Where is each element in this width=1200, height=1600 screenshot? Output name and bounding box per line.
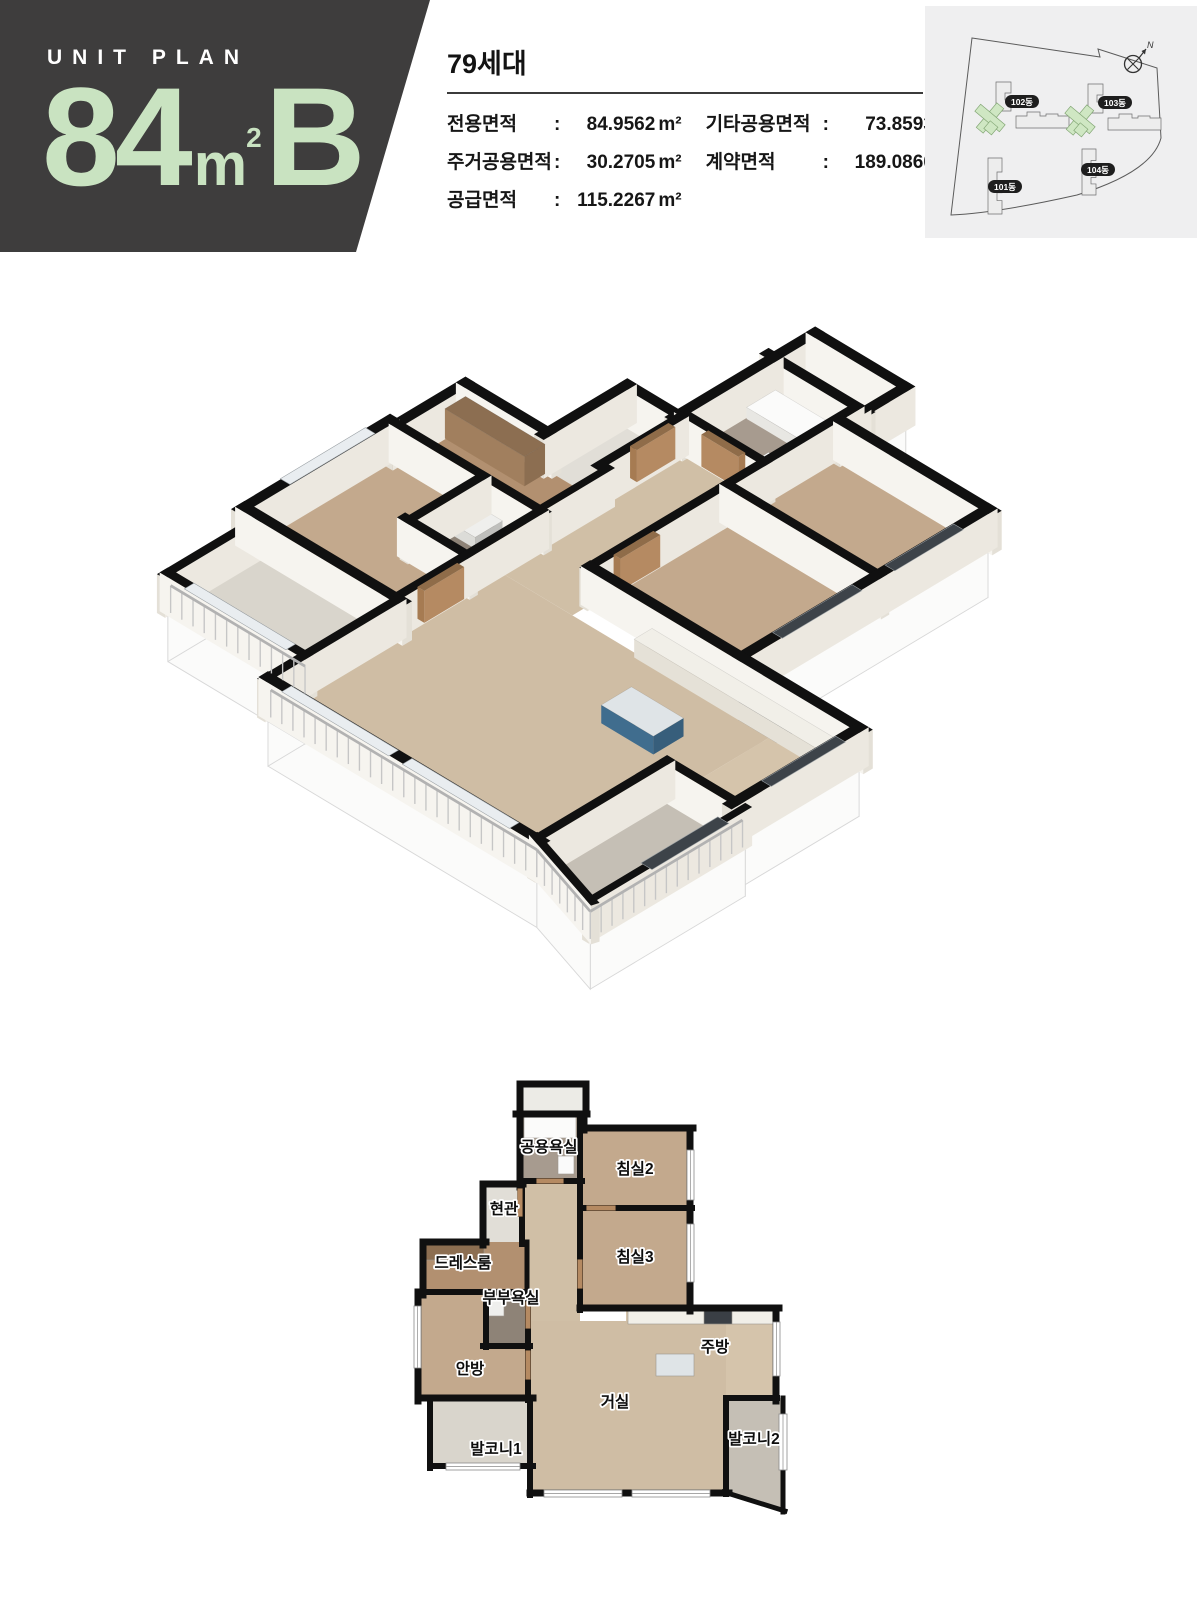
spec-unit: m² <box>658 114 681 136</box>
wall <box>517 1081 590 1088</box>
room-label: 공용욕실 <box>520 1138 577 1156</box>
spec-colon: : <box>823 152 829 174</box>
room-label: 드레스룸 <box>434 1254 491 1272</box>
fixture <box>558 1156 574 1174</box>
building-badge-label: 104동 <box>1087 165 1109 175</box>
spec-colon: : <box>823 114 829 136</box>
door-end <box>417 587 424 623</box>
room-label: 발코니2 <box>728 1430 779 1448</box>
building-badge: 104동 <box>1081 163 1115 176</box>
spec-label: 공급면적 <box>447 185 553 212</box>
room-label: 발코니1 <box>470 1440 522 1458</box>
spec-label: 주거공용면적 <box>447 147 553 174</box>
spec-value: 115.2267 <box>563 190 655 212</box>
building-badge-label: 101동 <box>994 182 1016 192</box>
door <box>578 1260 583 1289</box>
wall <box>723 1395 780 1401</box>
spec-colon: : <box>554 152 560 174</box>
compass-north-label: N <box>1147 40 1154 50</box>
room-label: 거실 <box>601 1393 630 1411</box>
unit-type-title: 84 m2 B <box>42 60 361 214</box>
building-badge: 103동 <box>1098 96 1132 109</box>
unit-area-number: 84 <box>42 60 188 214</box>
wall <box>581 1125 697 1132</box>
wall <box>577 1305 783 1312</box>
door <box>537 1179 564 1184</box>
spec-label: 계약면적 <box>706 147 822 174</box>
door <box>526 1351 531 1380</box>
spec-value: 189.0860 <box>832 152 934 174</box>
room-label: 현관 <box>490 1199 519 1218</box>
spec-colon: : <box>554 190 560 212</box>
divider-line <box>447 92 923 94</box>
building-badge-label: 102동 <box>1011 97 1033 107</box>
site-plan-map: N102동103동101동104동 <box>925 6 1197 238</box>
building-badge-label: 103동 <box>1104 98 1126 108</box>
households-count: 79세대 <box>447 42 923 81</box>
room-label: 부부욕실 <box>482 1289 539 1307</box>
building-badge: 101동 <box>988 180 1022 193</box>
spec-label: 기타공용면적 <box>706 109 822 136</box>
door-end <box>630 446 637 482</box>
room-label: 주방 <box>701 1338 730 1356</box>
room-area-utility-balcony <box>520 1086 586 1114</box>
fixture <box>628 1311 774 1324</box>
spec-column-left: 전용면적:84.9562m²주거공용면적:30.2705m²공급면적:115.2… <box>447 109 682 212</box>
spec-colon: : <box>554 114 560 136</box>
spec-value: 30.2705 <box>563 152 655 174</box>
spec-column-right: 기타공용면적:73.8593m²계약면적:189.0860m² <box>706 109 961 174</box>
wall <box>427 1395 433 1471</box>
isometric-3d-floorplan <box>140 322 1020 1008</box>
fixture <box>656 1354 694 1376</box>
room-label: 안방 <box>456 1360 485 1378</box>
building-badge: 102동 <box>1005 95 1039 108</box>
unit-plan-banner: UNIT PLAN 84 m2 B <box>0 0 432 252</box>
wall <box>420 1239 490 1246</box>
spec-label: 전용면적 <box>447 109 553 136</box>
spec-row: 전용면적:84.9562m² <box>447 109 682 136</box>
spec-row: 주거공용면적:30.2705m² <box>447 147 682 174</box>
spec-row: 기타공용면적:73.8593m² <box>706 109 961 136</box>
room-label: 침실3 <box>616 1247 654 1266</box>
room-label: 침실2 <box>616 1159 653 1178</box>
door <box>587 1206 616 1211</box>
unit-plan-page: UNIT PLAN 84 m2 B 79세대 전용면적:84.9562m²주거공… <box>0 0 1200 1600</box>
spec-unit: m² <box>658 190 681 212</box>
wall <box>527 1395 533 1498</box>
wall <box>577 1205 583 1313</box>
floorplan-2d: 공용욕실침실2현관드레스룸부부욕실침실3안방주방거실발코니1발코니2 <box>408 1056 808 1526</box>
spec-row: 공급면적:115.2267m² <box>447 185 682 212</box>
area-spec-panel: 79세대 전용면적:84.9562m²주거공용면적:30.2705m²공급면적:… <box>447 42 923 212</box>
fixture <box>704 1311 732 1324</box>
spec-value: 73.8593 <box>832 114 934 136</box>
spec-row: 계약면적:189.0860m² <box>706 147 961 174</box>
unit-area-unit: m2 <box>194 132 262 198</box>
spec-value: 84.9562 <box>563 114 655 136</box>
wall <box>577 1111 583 1214</box>
squared-sup: 2 <box>246 122 262 153</box>
spec-unit: m² <box>658 152 681 174</box>
spec-grid: 전용면적:84.9562m²주거공용면적:30.2705m²공급면적:115.2… <box>447 109 923 212</box>
wall <box>480 1181 487 1249</box>
wall <box>525 1240 530 1297</box>
fixture <box>524 1117 576 1138</box>
unit-type-letter: B <box>265 60 361 214</box>
